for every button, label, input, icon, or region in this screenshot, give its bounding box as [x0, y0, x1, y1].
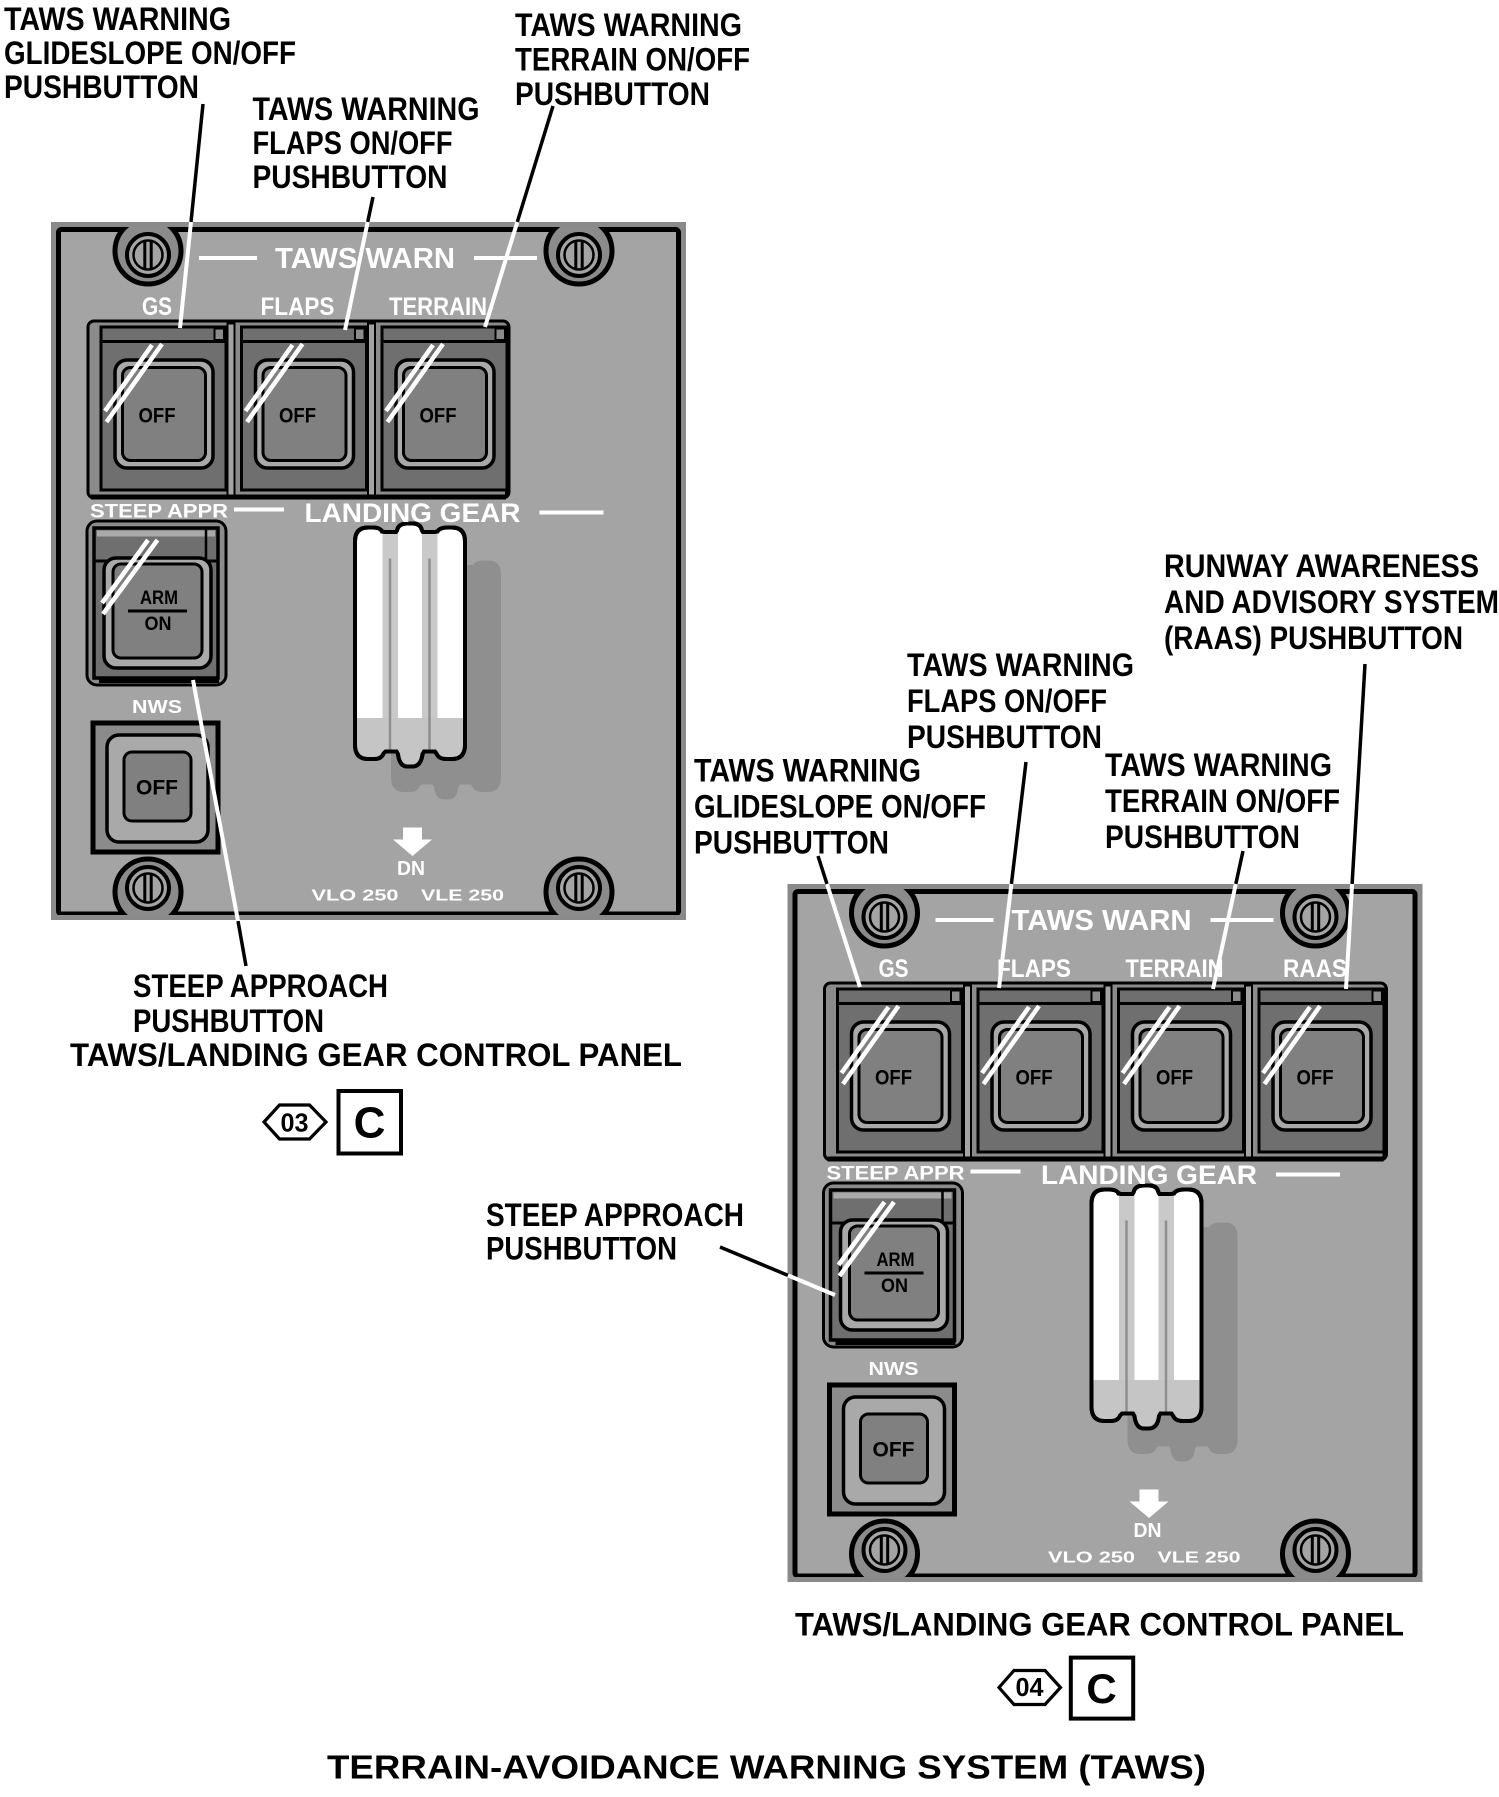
svg-text:VLO 250: VLO 250: [312, 888, 399, 905]
svg-text:TAWS WARNING: TAWS WARNING: [4, 1, 231, 37]
svg-text:TAWS WARNING: TAWS WARNING: [515, 7, 742, 43]
svg-text:STEEP APPR: STEEP APPR: [90, 502, 228, 523]
svg-text:TERRAIN: TERRAIN: [1126, 955, 1224, 983]
svg-text:NWS: NWS: [132, 697, 182, 717]
svg-text:TAWS WARNING: TAWS WARNING: [907, 647, 1134, 683]
svg-text:LANDING GEAR: LANDING GEAR: [1041, 1160, 1257, 1190]
svg-text:C: C: [1086, 1665, 1116, 1712]
svg-text:PUSHBUTTON: PUSHBUTTON: [133, 1003, 324, 1039]
svg-text:TAWS WARNING: TAWS WARNING: [1105, 747, 1332, 783]
svg-text:TERRAIN-AVOIDANCE WARNING SYST: TERRAIN-AVOIDANCE WARNING SYSTEM (TAWS): [327, 1749, 1206, 1786]
svg-text:TERRAIN: TERRAIN: [389, 293, 487, 321]
svg-text:TAWS/LANDING GEAR CONTROL PANE: TAWS/LANDING GEAR CONTROL PANEL: [70, 1037, 682, 1073]
svg-text:RAAS: RAAS: [1283, 955, 1347, 983]
svg-text:STEEP APPROACH: STEEP APPROACH: [486, 1197, 744, 1233]
svg-text:PUSHBUTTON: PUSHBUTTON: [907, 719, 1102, 755]
svg-text:(RAAS) PUSHBUTTON: (RAAS) PUSHBUTTON: [1164, 620, 1463, 656]
svg-text:RUNWAY AWARENESS: RUNWAY AWARENESS: [1164, 548, 1479, 584]
svg-text:C: C: [354, 1099, 386, 1148]
svg-text:PUSHBUTTON: PUSHBUTTON: [486, 1231, 677, 1267]
svg-text:VLO 250: VLO 250: [1048, 1550, 1135, 1567]
svg-text:STEEP APPROACH: STEEP APPROACH: [133, 968, 388, 1004]
svg-text:PUSHBUTTON: PUSHBUTTON: [694, 825, 889, 861]
svg-text:FLAPS: FLAPS: [997, 955, 1071, 983]
svg-text:PUSHBUTTON: PUSHBUTTON: [1105, 819, 1300, 855]
svg-text:TAWS WARNING: TAWS WARNING: [694, 753, 921, 789]
svg-text:AND ADVISORY SYSTEM: AND ADVISORY SYSTEM: [1164, 584, 1499, 620]
svg-text:STEEP APPR: STEEP APPR: [827, 1164, 965, 1185]
svg-text:LANDING GEAR: LANDING GEAR: [305, 498, 521, 528]
svg-text:TAWS WARNING: TAWS WARNING: [253, 91, 480, 127]
svg-text:GS: GS: [879, 955, 909, 983]
svg-text:PUSHBUTTON: PUSHBUTTON: [253, 159, 448, 195]
svg-text:TERRAIN ON/OFF: TERRAIN ON/OFF: [515, 42, 750, 78]
svg-text:GLIDESLOPE ON/OFF: GLIDESLOPE ON/OFF: [694, 789, 986, 825]
svg-text:TAWS WARN: TAWS WARN: [1012, 905, 1192, 937]
svg-text:TAWS WARN: TAWS WARN: [275, 243, 455, 275]
svg-text:VLE 250: VLE 250: [1158, 1550, 1241, 1567]
svg-text:NWS: NWS: [869, 1359, 919, 1379]
svg-text:FLAPS: FLAPS: [261, 293, 335, 321]
svg-text:FLAPS ON/OFF: FLAPS ON/OFF: [253, 125, 453, 161]
svg-text:TAWS/LANDING GEAR CONTROL PANE: TAWS/LANDING GEAR CONTROL PANEL: [795, 1607, 1404, 1643]
svg-text:GLIDESLOPE ON/OFF: GLIDESLOPE ON/OFF: [4, 35, 296, 71]
svg-text:VLE 250: VLE 250: [421, 888, 504, 905]
svg-text:03: 03: [281, 1107, 309, 1137]
svg-text:PUSHBUTTON: PUSHBUTTON: [4, 69, 199, 105]
svg-text:TERRAIN ON/OFF: TERRAIN ON/OFF: [1105, 783, 1340, 819]
svg-text:04: 04: [1016, 1672, 1045, 1702]
svg-text:PUSHBUTTON: PUSHBUTTON: [515, 76, 710, 112]
svg-text:DN: DN: [1134, 1520, 1162, 1542]
svg-text:FLAPS ON/OFF: FLAPS ON/OFF: [907, 683, 1107, 719]
svg-text:GS: GS: [142, 293, 172, 321]
svg-text:DN: DN: [397, 858, 425, 880]
